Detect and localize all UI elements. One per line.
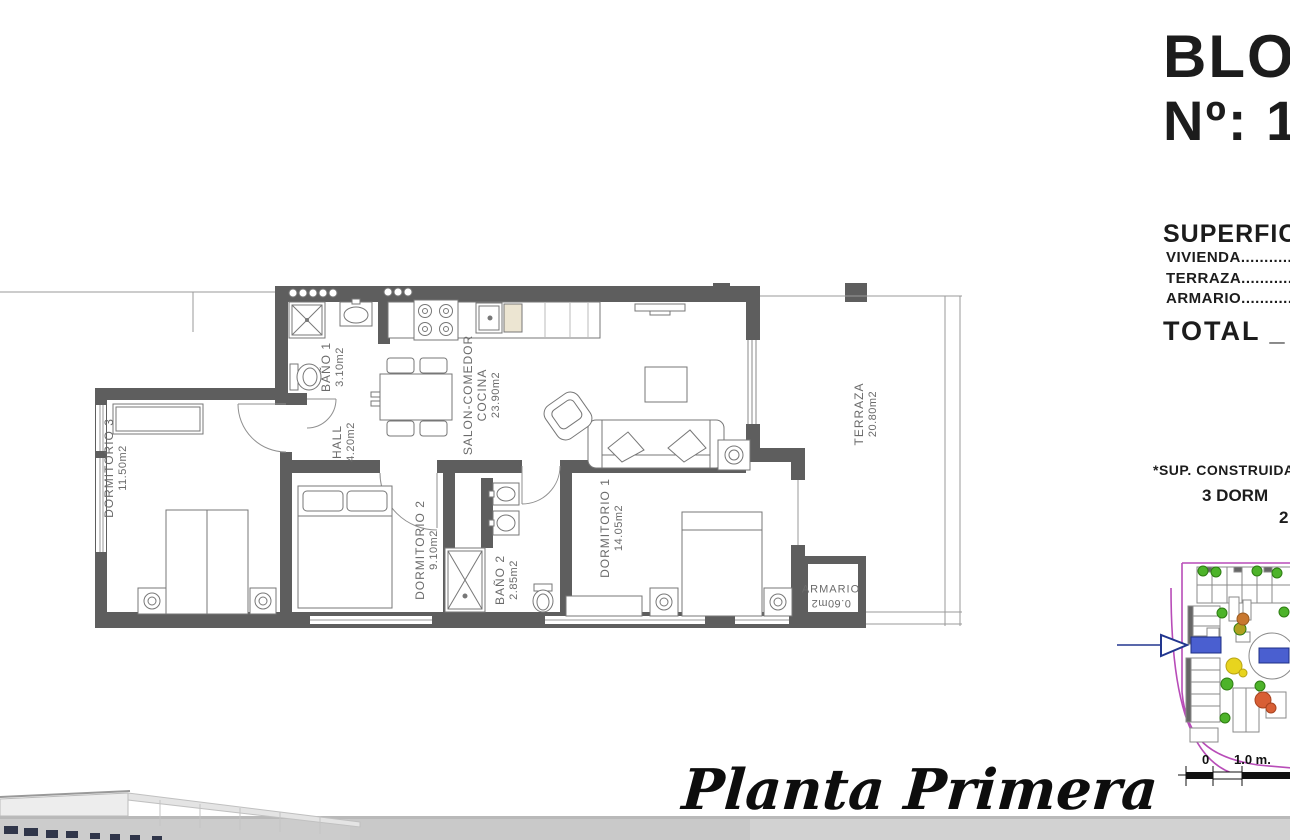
surface-row-armario: ARMARIO.................................… (1166, 290, 1290, 307)
dining-table (371, 358, 452, 436)
terrace-glass-door (748, 340, 756, 424)
room-name: ARMARIO (802, 583, 860, 595)
label-hall: HALL 4.20m2 (331, 422, 357, 462)
floor-plan-sheet: { "header": { "block": "BLOQ", "number":… (0, 0, 1290, 840)
label-armario: ARMARIO 0.60m2 (802, 583, 860, 608)
coffee-table (645, 367, 687, 402)
room-area: 0.60m2 (802, 596, 860, 609)
tv-unit (635, 304, 685, 315)
plan-drawing (0, 0, 1290, 840)
scale-one-meter-label: 1.0 m. (1234, 752, 1271, 767)
toilet-1 (290, 364, 321, 390)
label-dormitorio3: DORMITORIO 3 11.50m2 (103, 418, 129, 518)
room-area: 3.10m2 (334, 342, 347, 392)
sink-1 (340, 299, 372, 326)
label-bano1: BAÑO 1 3.10m2 (320, 342, 346, 392)
dresser (566, 596, 642, 616)
note-extra: 2 (1279, 508, 1288, 528)
room-area: 23.90m2 (489, 335, 502, 455)
toilet-2 (533, 584, 553, 612)
scale-zero-label: 0 (1202, 752, 1209, 767)
room-area: 14.05m2 (613, 478, 626, 578)
room-name2: COCINA (475, 369, 489, 422)
block-title: BLOQ (1163, 22, 1290, 91)
label-dormitorio1: DORMITORIO 1 14.05m2 (599, 478, 625, 578)
room-name: DORMITORIO 2 (413, 500, 427, 600)
plan-title: Planta Primera (680, 757, 1160, 823)
washing-machine (718, 440, 750, 470)
label-terraza: TERRAZA 20.80m2 (853, 382, 879, 445)
room-area: 20.80m2 (867, 382, 880, 445)
surfaces-total: TOTAL _ 1 (1163, 316, 1290, 347)
label-dormitorio2: DORMITORIO 2 9.10m2 (414, 500, 440, 600)
armchair (540, 388, 596, 444)
scale-bar (1178, 766, 1290, 786)
room-name: HALL (330, 425, 344, 459)
room-name: DORMITORIO 1 (598, 478, 612, 578)
surface-row-vivienda: VIVIENDA................................… (1166, 249, 1290, 266)
note-sup-construidas: *SUP. CONSTRUIDAS (1153, 462, 1290, 478)
double-basin (489, 483, 519, 535)
appliance (504, 304, 522, 332)
sofa (588, 420, 724, 468)
furniture (113, 288, 792, 616)
block-number: Nº: 1 (1163, 88, 1290, 153)
location-arrow (1117, 635, 1187, 656)
room-name: BAÑO 1 (319, 342, 333, 392)
site-plan (1117, 563, 1290, 775)
surfaces-title: SUPERFICIE (1163, 220, 1290, 249)
room-name: DORMITORIO 3 (102, 418, 116, 518)
room-area: 4.20m2 (345, 422, 358, 462)
room-name: BAÑO 2 (493, 555, 507, 605)
room-area: 9.10m2 (428, 500, 441, 600)
label-bano2: BAÑO 2 2.85m2 (494, 555, 520, 605)
boundary-lines (0, 292, 277, 332)
shower-1 (289, 302, 325, 338)
label-salon: SALON-COMEDOR COCINA 23.90m2 (462, 335, 502, 455)
bed-3 (138, 510, 276, 614)
bed-2 (298, 486, 392, 608)
room-name: TERRAZA (852, 382, 866, 445)
room-area: 2.85m2 (508, 555, 521, 605)
note-dormitorios: 3 DORM (1202, 486, 1268, 506)
shower-2 (445, 548, 485, 612)
surface-row-terraza: TERRAZA.................................… (1166, 270, 1290, 287)
room-area: 11.50m2 (117, 418, 130, 518)
room-name: SALON-COMEDOR (461, 335, 475, 455)
